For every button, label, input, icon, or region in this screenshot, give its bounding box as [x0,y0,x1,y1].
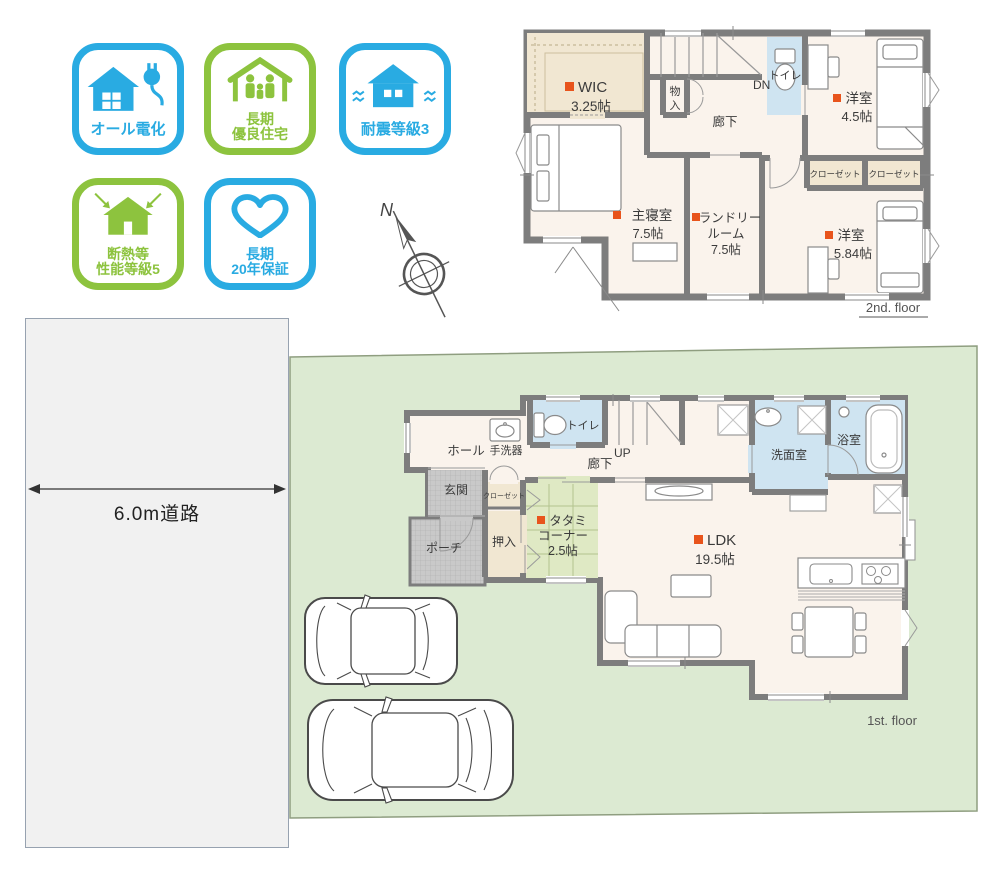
label-tatami-1: タタミ [549,514,587,528]
badge-label-line: 長期 [211,112,309,128]
road-area: 6.0m道路 [25,318,289,848]
house-quake-icon [351,61,439,113]
label-closet-left: クローゼット [809,169,860,179]
house-insulation-icon [86,192,170,238]
room-bullet [825,231,833,239]
label-tatami-size: 2.5帖 [548,543,578,558]
label-tatami-2: コーナー [538,529,588,543]
label-hallway-1f: 廊下 [587,456,612,471]
label-ldk-size: 19.5帖 [695,552,735,567]
label-laundry-size: 7.5帖 [711,242,741,257]
label-bathroom: 浴室 [837,432,861,447]
label-hallway-2f: 廊下 [712,114,737,129]
label-toilet-2f: トイレ [769,70,802,82]
bed-bedroom-584 [877,201,923,293]
badge-label-line: 優良住宅 [211,127,309,143]
house-family-icon [218,57,302,103]
label-toilet-1f: トイレ [567,420,600,432]
label-wic-size: 3.25帖 [571,99,611,114]
floor-plan-1f: ホール 手洗器 トイレ UP 廊下 玄関 ポーチ クローゼット 押入 タタミ コ… [400,385,940,730]
label-wic: WIC [578,79,607,96]
cabinet [790,495,826,511]
label-entrance: 玄関 [444,482,468,497]
bed-bedroom-45 [877,39,923,149]
bed-master [531,125,621,211]
label-storage: 入 [670,100,681,112]
label-ldk: LDK [707,532,736,549]
kitchen-counter [798,558,905,600]
badge-label-line: 断熱等 [79,247,177,263]
road-width-arrow [26,319,288,847]
badge-long-term-quality-housing: 長期 優良住宅 [204,43,316,155]
label-hand-basin: 手洗器 [490,443,523,457]
label-bedroom-45: 洋室 [846,90,873,106]
floor-plan-2f: WIC 3.25帖 物 入 DN トイレ 廊下 洋室 4.5帖 クローゼット ク… [515,15,945,325]
badge-label: 耐震等級3 [346,118,444,139]
label-master: 主寝室 [632,207,673,223]
toilet-fixture-1f [534,413,566,437]
label-closet-right: クローゼット [868,169,919,179]
floor2-caption: 2nd. floor [866,300,921,315]
compass-north-label: N [380,200,394,220]
badge-20-year-warranty: 長期 20年保証 [204,178,316,290]
kitchen-sink [810,564,852,584]
badge-label-line: 20年保証 [211,262,309,278]
label-porch: ポーチ [426,541,462,555]
room-bullet [537,516,545,524]
badge-label: オール電化 [79,118,177,139]
label-hall: ホール [447,444,485,458]
badge-label-line: 長期 [211,247,309,263]
badge-label-line: 性能等級5 [79,262,177,278]
room-bullet [565,82,574,91]
coffee-table [671,575,711,597]
label-laundry-2: ルーム [707,227,744,241]
room-bullet [833,94,841,102]
label-laundry-1: ランドリー [699,211,762,225]
label-bedroom-584: 洋室 [838,227,865,243]
tv-board [646,484,712,500]
label-storage: 物 [670,84,681,98]
badge-all-electric: オール電化 [72,43,184,155]
label-oshiire: 押入 [492,535,516,549]
hand-basin-fixture [490,419,520,441]
house-plug-icon [84,61,172,113]
room-bullet [613,211,621,219]
label-closet-1f: クローゼット [483,491,525,500]
label-bedroom-45-size: 4.5帖 [841,109,872,124]
room-bullet [694,535,703,544]
floor1-caption: 1st. floor [867,713,918,728]
badge-seismic-grade-3: 耐震等級3 [339,43,451,155]
dresser-master [633,243,677,261]
label-stairs-up: UP [614,446,631,460]
pantry-unit [874,485,902,513]
badge-insulation-grade-5: 断熱等 性能等級5 [72,178,184,290]
road-width-label: 6.0m道路 [26,499,288,526]
floor-plan-sheet: オール電化 長期 優良住宅 耐震等級3 [0,0,1000,878]
label-master-size: 7.5帖 [632,226,663,241]
label-washroom: 洗面室 [771,447,807,462]
vanity-basin [755,408,781,426]
washer-pan [798,406,826,434]
compass: N [372,196,482,324]
heart-icon [218,192,302,238]
label-bedroom-584-size: 5.84帖 [834,246,872,261]
